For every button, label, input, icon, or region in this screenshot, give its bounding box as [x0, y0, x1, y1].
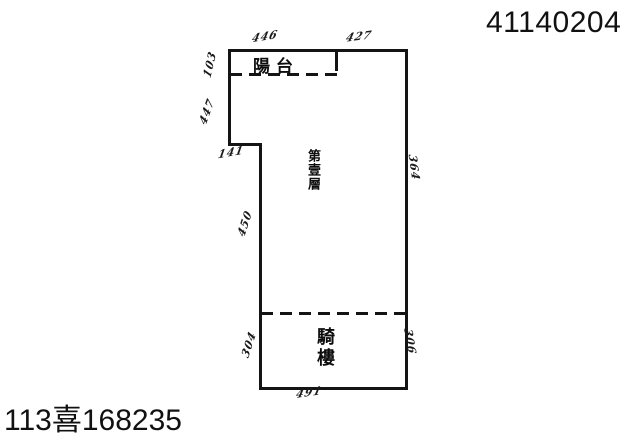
dimension-top-left: 446 [251, 28, 280, 46]
wall-left-upper [228, 49, 231, 146]
dimension-arcade-left: 304 [239, 329, 259, 360]
dimension-top-right: 427 [344, 28, 373, 45]
scanned-floor-plan-page: 41140204 113喜168235 陽台 第壹層 騎樓 446 427 10… [0, 0, 640, 442]
case-number: 113喜168235 [4, 395, 182, 439]
dimension-right: 364 [406, 154, 423, 181]
wall-bottom [259, 387, 408, 390]
arcade-dashed-line [261, 312, 405, 315]
dimension-left-middle: 450 [235, 208, 255, 239]
balcony-divider-stub [335, 49, 338, 62]
dimension-balcony-left: 103 [201, 49, 219, 80]
balcony-label: 陽台 [253, 52, 299, 77]
dimension-bottom: 491 [294, 384, 323, 401]
plan-serial-number: 41140204 [486, 6, 621, 40]
wall-left-lower [259, 143, 262, 390]
dimension-arcade-right: 306 [401, 328, 419, 354]
dimension-step: 141 [217, 143, 245, 161]
first-floor-label: 第壹層 [303, 149, 322, 191]
arcade-label: 騎樓 [311, 327, 337, 369]
dimension-left-upper: 447 [197, 96, 217, 127]
